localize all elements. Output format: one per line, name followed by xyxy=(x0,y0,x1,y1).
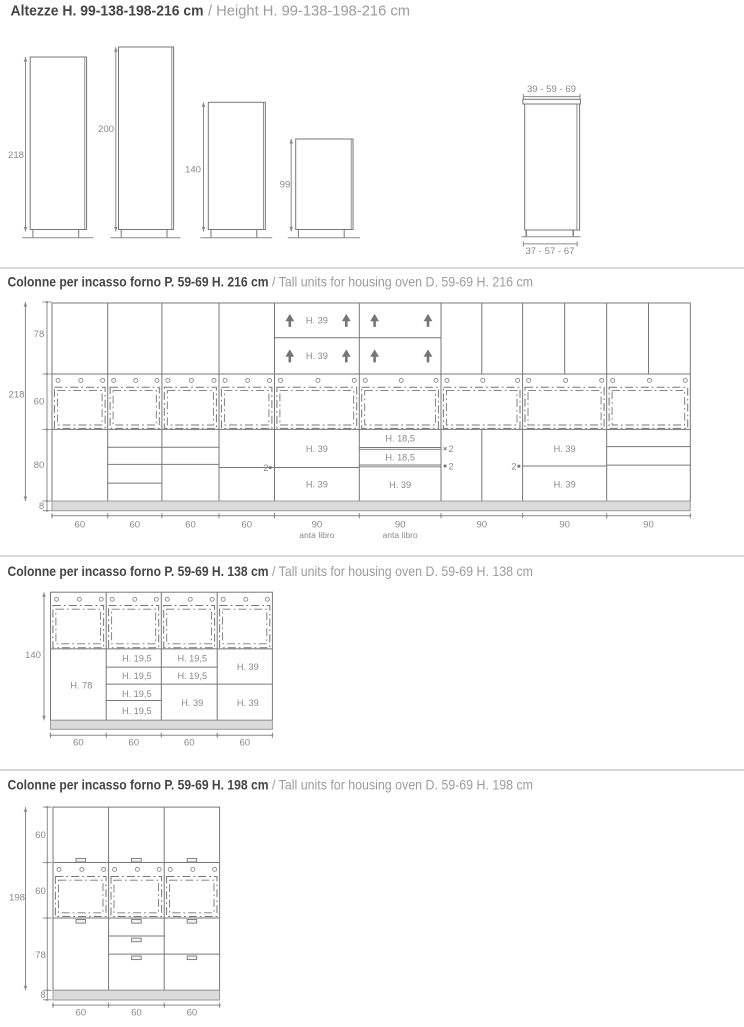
svg-text:anta libro: anta libro xyxy=(382,530,418,540)
svg-text:/ Tall units for housing oven: / Tall units for housing oven D. 59-69 H… xyxy=(272,275,533,290)
svg-text:60: 60 xyxy=(131,1007,142,1018)
svg-text:39 - 59 - 69: 39 - 59 - 69 xyxy=(527,84,576,95)
svg-text:H. 39: H. 39 xyxy=(389,480,411,490)
svg-text:2: 2 xyxy=(511,461,516,471)
svg-text:Altezze H. 99-138-198-216 cm: Altezze H. 99-138-198-216 cm xyxy=(11,3,204,20)
svg-text:8: 8 xyxy=(40,990,45,1001)
svg-text:2: 2 xyxy=(263,463,268,473)
svg-text:H. 39: H. 39 xyxy=(306,480,328,490)
svg-text:60: 60 xyxy=(34,397,45,408)
svg-text:90: 90 xyxy=(559,519,570,530)
svg-text:H. 39: H. 39 xyxy=(554,444,576,454)
svg-text:H. 39: H. 39 xyxy=(237,662,259,672)
svg-text:/ Tall units for housing oven: / Tall units for housing oven D. 59-69 H… xyxy=(272,564,533,579)
svg-text:90: 90 xyxy=(476,519,487,530)
svg-text:Colonne per incasso forno P. 5: Colonne per incasso forno P. 59-69 H. 19… xyxy=(8,778,269,793)
svg-text:H. 19,5: H. 19,5 xyxy=(122,654,152,664)
svg-text:anta libro: anta libro xyxy=(299,530,335,540)
svg-text:H. 19,5: H. 19,5 xyxy=(122,671,152,681)
svg-text:90: 90 xyxy=(395,519,406,530)
svg-text:60: 60 xyxy=(35,830,46,841)
svg-text:2: 2 xyxy=(448,462,453,472)
svg-text:Colonne per incasso forno P. 5: Colonne per incasso forno P. 59-69 H. 21… xyxy=(8,275,269,290)
svg-text:H. 39: H. 39 xyxy=(181,698,203,708)
svg-text:/ Height H. 99-138-198-216 cm: / Height H. 99-138-198-216 cm xyxy=(208,3,410,20)
svg-text:99: 99 xyxy=(280,180,291,191)
svg-text:60: 60 xyxy=(35,886,46,897)
svg-text:H. 18,5: H. 18,5 xyxy=(385,434,415,444)
svg-text:60: 60 xyxy=(241,519,252,530)
svg-text:H. 39: H. 39 xyxy=(306,444,328,454)
svg-text:60: 60 xyxy=(239,738,250,749)
svg-text:60: 60 xyxy=(184,738,195,749)
svg-text:140: 140 xyxy=(185,165,201,176)
svg-text:8: 8 xyxy=(39,501,44,512)
svg-text:78: 78 xyxy=(35,950,46,961)
svg-text:H. 19,5: H. 19,5 xyxy=(177,654,207,664)
svg-text:H. 78: H. 78 xyxy=(70,681,92,691)
svg-text:200: 200 xyxy=(98,124,114,135)
svg-text:198: 198 xyxy=(9,893,25,904)
svg-text:H. 39: H. 39 xyxy=(554,480,576,490)
svg-text:78: 78 xyxy=(34,329,45,340)
svg-text:218: 218 xyxy=(8,150,24,161)
svg-text:60: 60 xyxy=(185,519,196,530)
svg-text:37 - 57 - 67: 37 - 57 - 67 xyxy=(525,246,574,257)
svg-text:60: 60 xyxy=(128,738,139,749)
svg-text:60: 60 xyxy=(129,519,140,530)
svg-text:H. 19,5: H. 19,5 xyxy=(122,706,152,716)
svg-text:H. 19,5: H. 19,5 xyxy=(177,671,207,681)
svg-text:H. 18,5: H. 18,5 xyxy=(385,453,415,463)
svg-text:60: 60 xyxy=(187,1007,198,1018)
svg-text:60: 60 xyxy=(75,519,86,530)
svg-text:90: 90 xyxy=(643,519,654,530)
svg-text:H. 19,5: H. 19,5 xyxy=(122,689,152,699)
svg-text:Colonne per incasso forno P. 5: Colonne per incasso forno P. 59-69 H. 13… xyxy=(8,564,269,579)
svg-text:90: 90 xyxy=(312,519,323,530)
svg-text:60: 60 xyxy=(75,1007,86,1018)
svg-text:H. 39: H. 39 xyxy=(306,316,328,326)
svg-text:80: 80 xyxy=(34,460,45,471)
svg-text:60: 60 xyxy=(73,738,84,749)
svg-text:H. 39: H. 39 xyxy=(306,351,328,361)
svg-text:H. 39: H. 39 xyxy=(237,698,259,708)
svg-text:140: 140 xyxy=(25,650,41,661)
svg-text:218: 218 xyxy=(8,390,24,401)
svg-text:/ Tall units for housing oven: / Tall units for housing oven D. 59-69 H… xyxy=(272,778,533,793)
svg-text:2: 2 xyxy=(448,444,453,454)
